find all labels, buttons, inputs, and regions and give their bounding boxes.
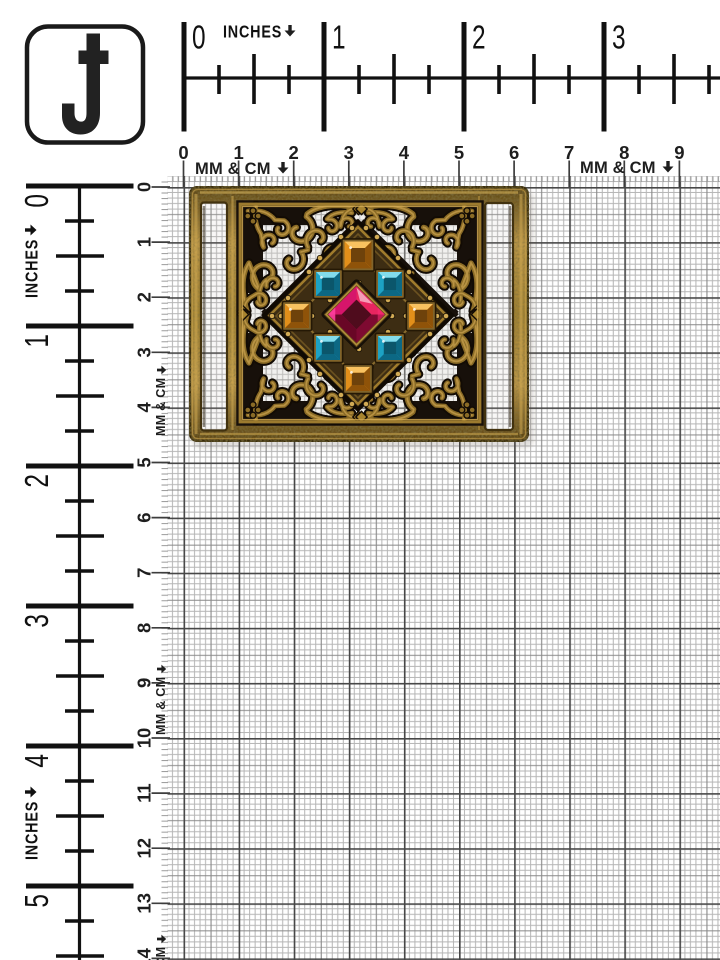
svg-text:9: 9 (674, 142, 684, 163)
svg-text:3: 3 (344, 142, 354, 163)
svg-text:0: 0 (134, 182, 155, 192)
svg-text:11: 11 (134, 783, 155, 803)
svg-text:INCHES: INCHES (23, 801, 42, 860)
svg-text:MM & CM: MM & CM (154, 378, 168, 436)
svg-text:MM & CM: MM & CM (195, 160, 271, 178)
svg-text:0: 0 (192, 20, 206, 56)
svg-text:MM & CM: MM & CM (580, 159, 656, 177)
svg-text:4: 4 (20, 754, 56, 768)
svg-text:13: 13 (134, 893, 155, 914)
svg-text:MM & CM: MM & CM (154, 677, 168, 735)
svg-text:10: 10 (134, 728, 155, 749)
svg-text:4: 4 (134, 402, 155, 413)
svg-text:7: 7 (564, 142, 574, 163)
svg-text:14: 14 (134, 947, 155, 960)
svg-text:1: 1 (20, 334, 56, 348)
svg-text:3: 3 (134, 347, 155, 357)
svg-text:2: 2 (289, 142, 299, 163)
svg-text:5: 5 (454, 142, 464, 163)
svg-text:3: 3 (20, 614, 56, 628)
svg-text:INCHES: INCHES (223, 23, 282, 42)
svg-text:12: 12 (134, 838, 155, 859)
svg-text:0: 0 (20, 194, 56, 208)
svg-text:8: 8 (134, 623, 155, 633)
svg-text:5: 5 (134, 457, 155, 467)
svg-text:2: 2 (134, 292, 155, 302)
svg-text:9: 9 (134, 678, 155, 688)
svg-text:7: 7 (134, 568, 155, 578)
svg-text:0: 0 (178, 142, 188, 163)
svg-text:6: 6 (509, 142, 519, 163)
svg-text:5: 5 (20, 894, 56, 908)
svg-text:2: 2 (472, 20, 486, 56)
svg-text:2: 2 (20, 474, 56, 488)
svg-text:MM & CM: MM & CM (154, 947, 168, 960)
svg-text:4: 4 (399, 142, 410, 163)
svg-text:INCHES: INCHES (23, 239, 42, 298)
svg-text:1: 1 (134, 237, 155, 247)
svg-text:1: 1 (332, 20, 346, 56)
svg-text:6: 6 (134, 512, 155, 522)
svg-text:3: 3 (612, 20, 626, 56)
